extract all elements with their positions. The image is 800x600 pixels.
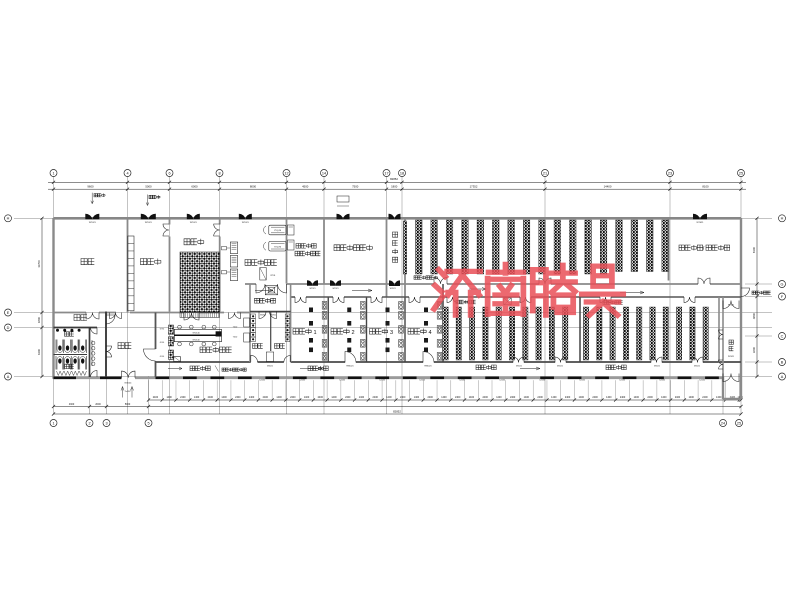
svg-text:1400: 1400: [579, 396, 585, 399]
svg-text:W7021: W7021: [242, 222, 250, 224]
svg-text:6: 6: [168, 171, 170, 175]
svg-text:23: 23: [668, 171, 672, 175]
svg-text:1400: 1400: [249, 396, 255, 399]
svg-text:1400: 1400: [441, 396, 447, 399]
svg-text:2400: 2400: [153, 396, 159, 399]
svg-text:M1521: M1521: [516, 366, 522, 368]
svg-text:2400: 2400: [510, 396, 516, 399]
svg-text:1400: 1400: [496, 396, 502, 399]
svg-text:TZ10: TZ10: [233, 337, 237, 339]
svg-text:YXQ.M: YXQ.M: [274, 230, 281, 232]
svg-text:4: 4: [429, 330, 432, 336]
svg-text:1400: 1400: [414, 396, 420, 399]
svg-text:HM1021: HM1021: [424, 366, 431, 368]
svg-text:W7021: W7021: [145, 222, 153, 224]
svg-text:1400: 1400: [304, 396, 310, 399]
svg-text:2400: 2400: [592, 396, 598, 399]
svg-text:4500: 4500: [302, 185, 309, 189]
svg-text:2400: 2400: [373, 396, 379, 399]
svg-text:YXQ.M: YXQ.M: [274, 246, 281, 248]
svg-text:5000: 5000: [125, 403, 131, 406]
svg-text:6000: 6000: [191, 185, 198, 189]
svg-text:1400: 1400: [524, 396, 530, 399]
svg-text:25: 25: [737, 421, 741, 425]
svg-text:D: D: [7, 326, 10, 330]
svg-text:14400: 14400: [604, 185, 612, 189]
svg-text:3: 3: [105, 421, 107, 425]
svg-text:C2116: C2116: [419, 380, 426, 382]
svg-text:W7021: W7021: [190, 222, 198, 224]
svg-text:17: 17: [384, 171, 388, 175]
svg-text:C2116: C2116: [259, 380, 266, 382]
svg-text:SY2140: SY2140: [192, 340, 200, 342]
svg-text:14: 14: [322, 171, 326, 175]
svg-text:1400: 1400: [634, 396, 640, 399]
svg-text:2400: 2400: [675, 396, 681, 399]
svg-text:1400: 1400: [194, 396, 200, 399]
svg-text:2400: 2400: [263, 396, 269, 399]
svg-text:C2116: C2116: [459, 380, 466, 382]
svg-text:W7021: W7021: [697, 222, 705, 224]
svg-text:1: 1: [314, 330, 317, 336]
svg-text:1400: 1400: [606, 396, 612, 399]
svg-text:1: 1: [52, 171, 54, 175]
svg-text:8000: 8000: [250, 185, 257, 189]
svg-text:C2116: C2116: [539, 380, 546, 382]
svg-text:9600: 9600: [87, 185, 94, 189]
svg-text:TZ10: TZ10: [233, 327, 237, 329]
svg-text:W7021: W7021: [333, 288, 339, 290]
svg-text:2400: 2400: [235, 396, 241, 399]
svg-text:18: 18: [400, 171, 404, 175]
svg-text:B: B: [781, 360, 784, 364]
svg-text:1400: 1400: [359, 396, 365, 399]
svg-text:2400: 2400: [180, 396, 186, 399]
svg-text:82852: 82852: [393, 410, 401, 414]
svg-text:2400: 2400: [620, 396, 626, 399]
svg-text:5: 5: [147, 421, 149, 425]
svg-text:2: 2: [88, 421, 90, 425]
svg-text:M1521: M1521: [654, 366, 660, 368]
svg-text:3: 3: [390, 330, 393, 336]
svg-text:1400: 1400: [166, 396, 172, 399]
svg-text:W7021: W7021: [390, 288, 396, 290]
svg-text:W7021: W7021: [728, 305, 734, 307]
svg-text:2400: 2400: [208, 396, 214, 399]
svg-text:2400: 2400: [400, 396, 406, 399]
svg-text:M1521: M1521: [557, 366, 563, 368]
svg-text:W0921: W0921: [270, 314, 276, 316]
svg-text:1400: 1400: [469, 396, 475, 399]
svg-text:1400: 1400: [221, 396, 227, 399]
svg-text:GYG: GYG: [160, 356, 165, 358]
svg-text:4: 4: [126, 171, 128, 175]
svg-text:A: A: [781, 375, 784, 379]
svg-text:C2116: C2116: [339, 380, 346, 382]
svg-text:2: 2: [352, 330, 355, 336]
svg-text:M1524: M1524: [125, 383, 132, 385]
svg-text:C2116: C2116: [379, 380, 386, 382]
svg-text:8100: 8100: [702, 185, 709, 189]
svg-text:2400: 2400: [345, 396, 351, 399]
svg-text:W7021: W7021: [310, 288, 316, 290]
svg-text:6300: 6300: [37, 348, 41, 355]
svg-text:2400: 2400: [702, 396, 708, 399]
svg-text:/: /: [703, 246, 705, 252]
svg-text:8100: 8100: [752, 246, 756, 253]
svg-text:2400: 2400: [647, 396, 653, 399]
svg-text:12: 12: [284, 171, 288, 175]
svg-text:1800: 1800: [391, 185, 398, 189]
svg-text:A: A: [7, 375, 10, 379]
svg-text:C2116: C2116: [579, 380, 586, 382]
svg-text:25: 25: [739, 171, 743, 175]
svg-text:82852: 82852: [390, 177, 398, 181]
svg-text:M1521: M1521: [694, 366, 700, 368]
svg-text:GYG: GYG: [160, 329, 165, 331]
svg-text:2400: 2400: [565, 396, 571, 399]
svg-text:21: 21: [543, 171, 547, 175]
svg-text:C2116: C2116: [659, 380, 666, 382]
svg-text:17352: 17352: [470, 185, 478, 189]
svg-text:H: H: [7, 217, 10, 221]
svg-text:C2116: C2116: [499, 380, 506, 382]
svg-text:1: 1: [52, 421, 54, 425]
svg-text:1400: 1400: [331, 396, 337, 399]
svg-text:2400: 2400: [428, 396, 434, 399]
svg-text:2000: 2000: [95, 403, 101, 406]
svg-text:24: 24: [721, 421, 725, 425]
svg-text:W7021: W7021: [728, 356, 734, 358]
svg-text:4800: 4800: [752, 312, 756, 319]
svg-text:2400: 2400: [537, 396, 543, 399]
svg-text:5000: 5000: [145, 185, 152, 189]
svg-text:1400: 1400: [689, 396, 695, 399]
svg-text:HM1021: HM1021: [346, 366, 353, 368]
svg-text:1400: 1400: [661, 396, 667, 399]
svg-text:2400: 2400: [290, 396, 296, 399]
svg-text:3200: 3200: [752, 346, 756, 353]
svg-text:C2116: C2116: [619, 380, 626, 382]
svg-text:W7021: W7021: [89, 222, 97, 224]
svg-text:C2116: C2116: [699, 380, 706, 382]
svg-text:1400: 1400: [386, 396, 392, 399]
svg-text:4300: 4300: [69, 403, 75, 406]
svg-text:1400: 1400: [276, 396, 282, 399]
svg-text:11700: 11700: [37, 260, 41, 268]
svg-text:2x150: 2x150: [125, 391, 131, 393]
svg-text:7500: 7500: [352, 185, 359, 189]
svg-text:8: 8: [218, 171, 220, 175]
svg-text:1800: 1800: [37, 316, 41, 323]
svg-text:1400: 1400: [716, 396, 722, 399]
svg-text:1400: 1400: [551, 396, 557, 399]
svg-text:G: G: [781, 282, 784, 286]
svg-text:2400: 2400: [318, 396, 324, 399]
svg-text:M1021: M1021: [267, 366, 273, 368]
svg-text:C2116: C2116: [299, 380, 306, 382]
svg-text:E: E: [7, 311, 10, 315]
svg-text:SY2140: SY2140: [192, 333, 200, 335]
svg-text:W0921: W0921: [260, 314, 266, 316]
svg-text:GYG: GYG: [160, 342, 165, 344]
svg-text:2400: 2400: [455, 396, 461, 399]
svg-text:H: H: [781, 217, 784, 221]
svg-text:2400: 2400: [482, 396, 488, 399]
svg-text:C: C: [781, 334, 784, 338]
